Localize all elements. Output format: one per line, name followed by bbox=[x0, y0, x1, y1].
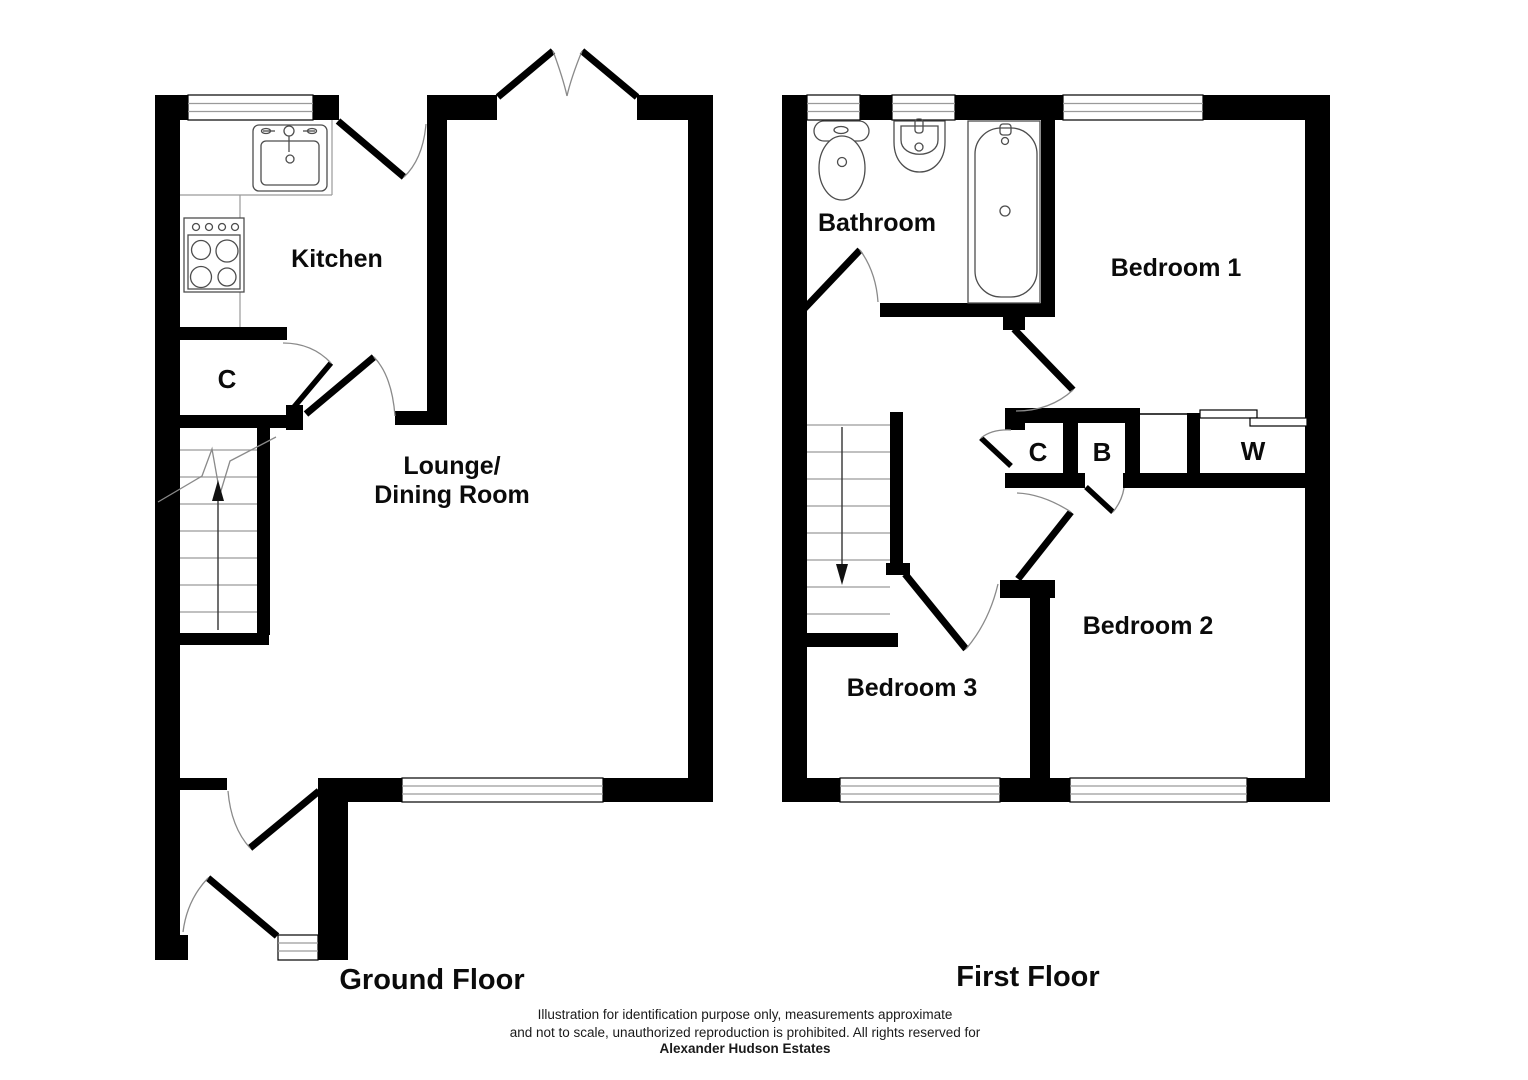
label-bedroom1: Bedroom 1 bbox=[1111, 254, 1242, 282]
label-lounge-line1: Lounge/ bbox=[403, 452, 500, 480]
disclaimer-line1: Illustration for identification purpose … bbox=[538, 1007, 953, 1022]
label-bedroom2: Bedroom 2 bbox=[1083, 612, 1214, 640]
bedroom2-window bbox=[1070, 778, 1247, 802]
bathroom-door bbox=[804, 250, 878, 309]
front-door-sidelight bbox=[278, 935, 318, 960]
disclaimer: Illustration for identification purpose … bbox=[510, 1007, 981, 1056]
toilet-fixture bbox=[814, 121, 869, 200]
disclaimer-line2: and not to scale, unauthorized reproduct… bbox=[510, 1025, 981, 1040]
bedroom3-window bbox=[840, 778, 1000, 802]
boiler-cupboard-door bbox=[1086, 487, 1124, 512]
first-floor-plan: Bathroom Bedroom 1 C B W Bedroom 2 Bedro… bbox=[782, 95, 1330, 993]
label-bathroom: Bathroom bbox=[818, 209, 936, 237]
bedroom1-window bbox=[1063, 95, 1203, 120]
ground-floor-caption: Ground Floor bbox=[339, 964, 524, 996]
stairs-up-arrow bbox=[212, 480, 224, 501]
stairs-down-arrow bbox=[836, 564, 848, 585]
kitchen-sink-fixture bbox=[253, 125, 327, 191]
ff-cupboard-door bbox=[981, 430, 1011, 466]
lounge-window bbox=[402, 778, 603, 802]
floorplan-page: Kitchen C Lounge/ Dining Room Ground Flo… bbox=[0, 0, 1528, 1080]
bedroom3-door bbox=[905, 574, 998, 649]
disclaimer-line3: Alexander Hudson Estates bbox=[659, 1041, 830, 1056]
label-lounge-line2: Dining Room bbox=[374, 481, 530, 509]
label-bedroom3: Bedroom 3 bbox=[847, 674, 978, 702]
lounge-door bbox=[306, 357, 395, 416]
wardrobe-sliding-doors bbox=[1200, 410, 1307, 426]
ground-floor-plan: Kitchen C Lounge/ Dining Room Ground Flo… bbox=[155, 51, 713, 996]
basin-fixture bbox=[894, 119, 945, 172]
label-ff-cupboard: C bbox=[1029, 437, 1048, 467]
stairs-down bbox=[807, 425, 890, 614]
label-boiler: B bbox=[1093, 437, 1112, 467]
label-wardrobe: W bbox=[1241, 436, 1266, 466]
bedroom2-door bbox=[1017, 493, 1071, 579]
bath-fixture bbox=[968, 121, 1040, 303]
kitchen-back-door bbox=[338, 121, 426, 177]
first-floor-caption: First Floor bbox=[956, 961, 1099, 993]
french-doors bbox=[498, 51, 637, 97]
bedroom1-door bbox=[1014, 329, 1073, 411]
front-door bbox=[183, 878, 277, 936]
hall-inner-door bbox=[228, 791, 319, 848]
label-kitchen: Kitchen bbox=[291, 245, 383, 273]
bathroom-window-2 bbox=[892, 95, 955, 120]
label-gf-cupboard: C bbox=[218, 364, 237, 394]
floor-plan-drawing: Kitchen C Lounge/ Dining Room Ground Flo… bbox=[0, 0, 1528, 1080]
stove-fixture bbox=[184, 218, 244, 292]
bathroom-window-1 bbox=[807, 95, 860, 120]
kitchen-window bbox=[188, 95, 313, 120]
